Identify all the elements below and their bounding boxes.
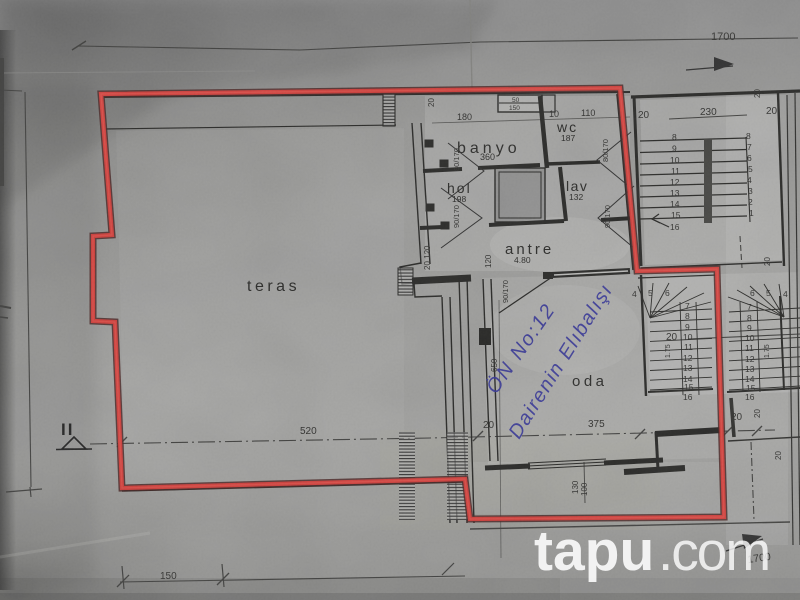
svg-text:.com: .com xyxy=(658,520,769,582)
svg-text:tapu: tapu xyxy=(534,519,654,583)
